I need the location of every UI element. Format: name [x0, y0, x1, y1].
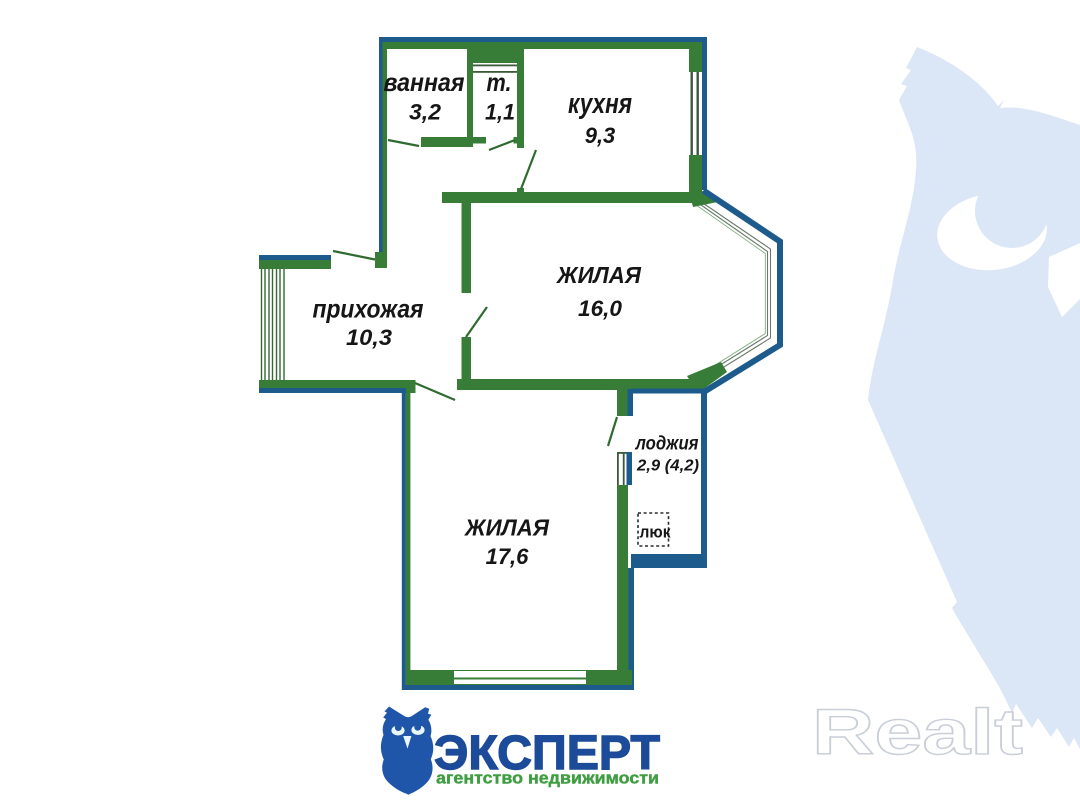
svg-text:агентство недвижимости: агентство недвижимости [436, 770, 659, 788]
svg-text:2,9 (4,2): 2,9 (4,2) [636, 458, 699, 475]
svg-text:прихожая: прихожая [313, 294, 424, 324]
svg-text:ЖИЛАЯ: ЖИЛАЯ [464, 515, 550, 541]
svg-text:ЖИЛАЯ: ЖИЛАЯ [556, 262, 642, 288]
svg-text:кухня: кухня [568, 88, 632, 120]
svg-text:17,6: 17,6 [486, 544, 530, 569]
svg-text:1,1: 1,1 [485, 100, 515, 125]
svg-text:т.: т. [487, 69, 512, 97]
svg-text:Realt: Realt [812, 696, 1023, 768]
svg-text:3,2: 3,2 [409, 100, 442, 125]
svg-text:лоджия: лоджия [635, 434, 699, 455]
svg-text:10,3: 10,3 [346, 325, 392, 350]
svg-text:люк: люк [640, 523, 671, 542]
svg-text:9,3: 9,3 [585, 123, 616, 148]
svg-text:ванная: ванная [384, 67, 465, 97]
svg-text:16,0: 16,0 [578, 296, 623, 321]
